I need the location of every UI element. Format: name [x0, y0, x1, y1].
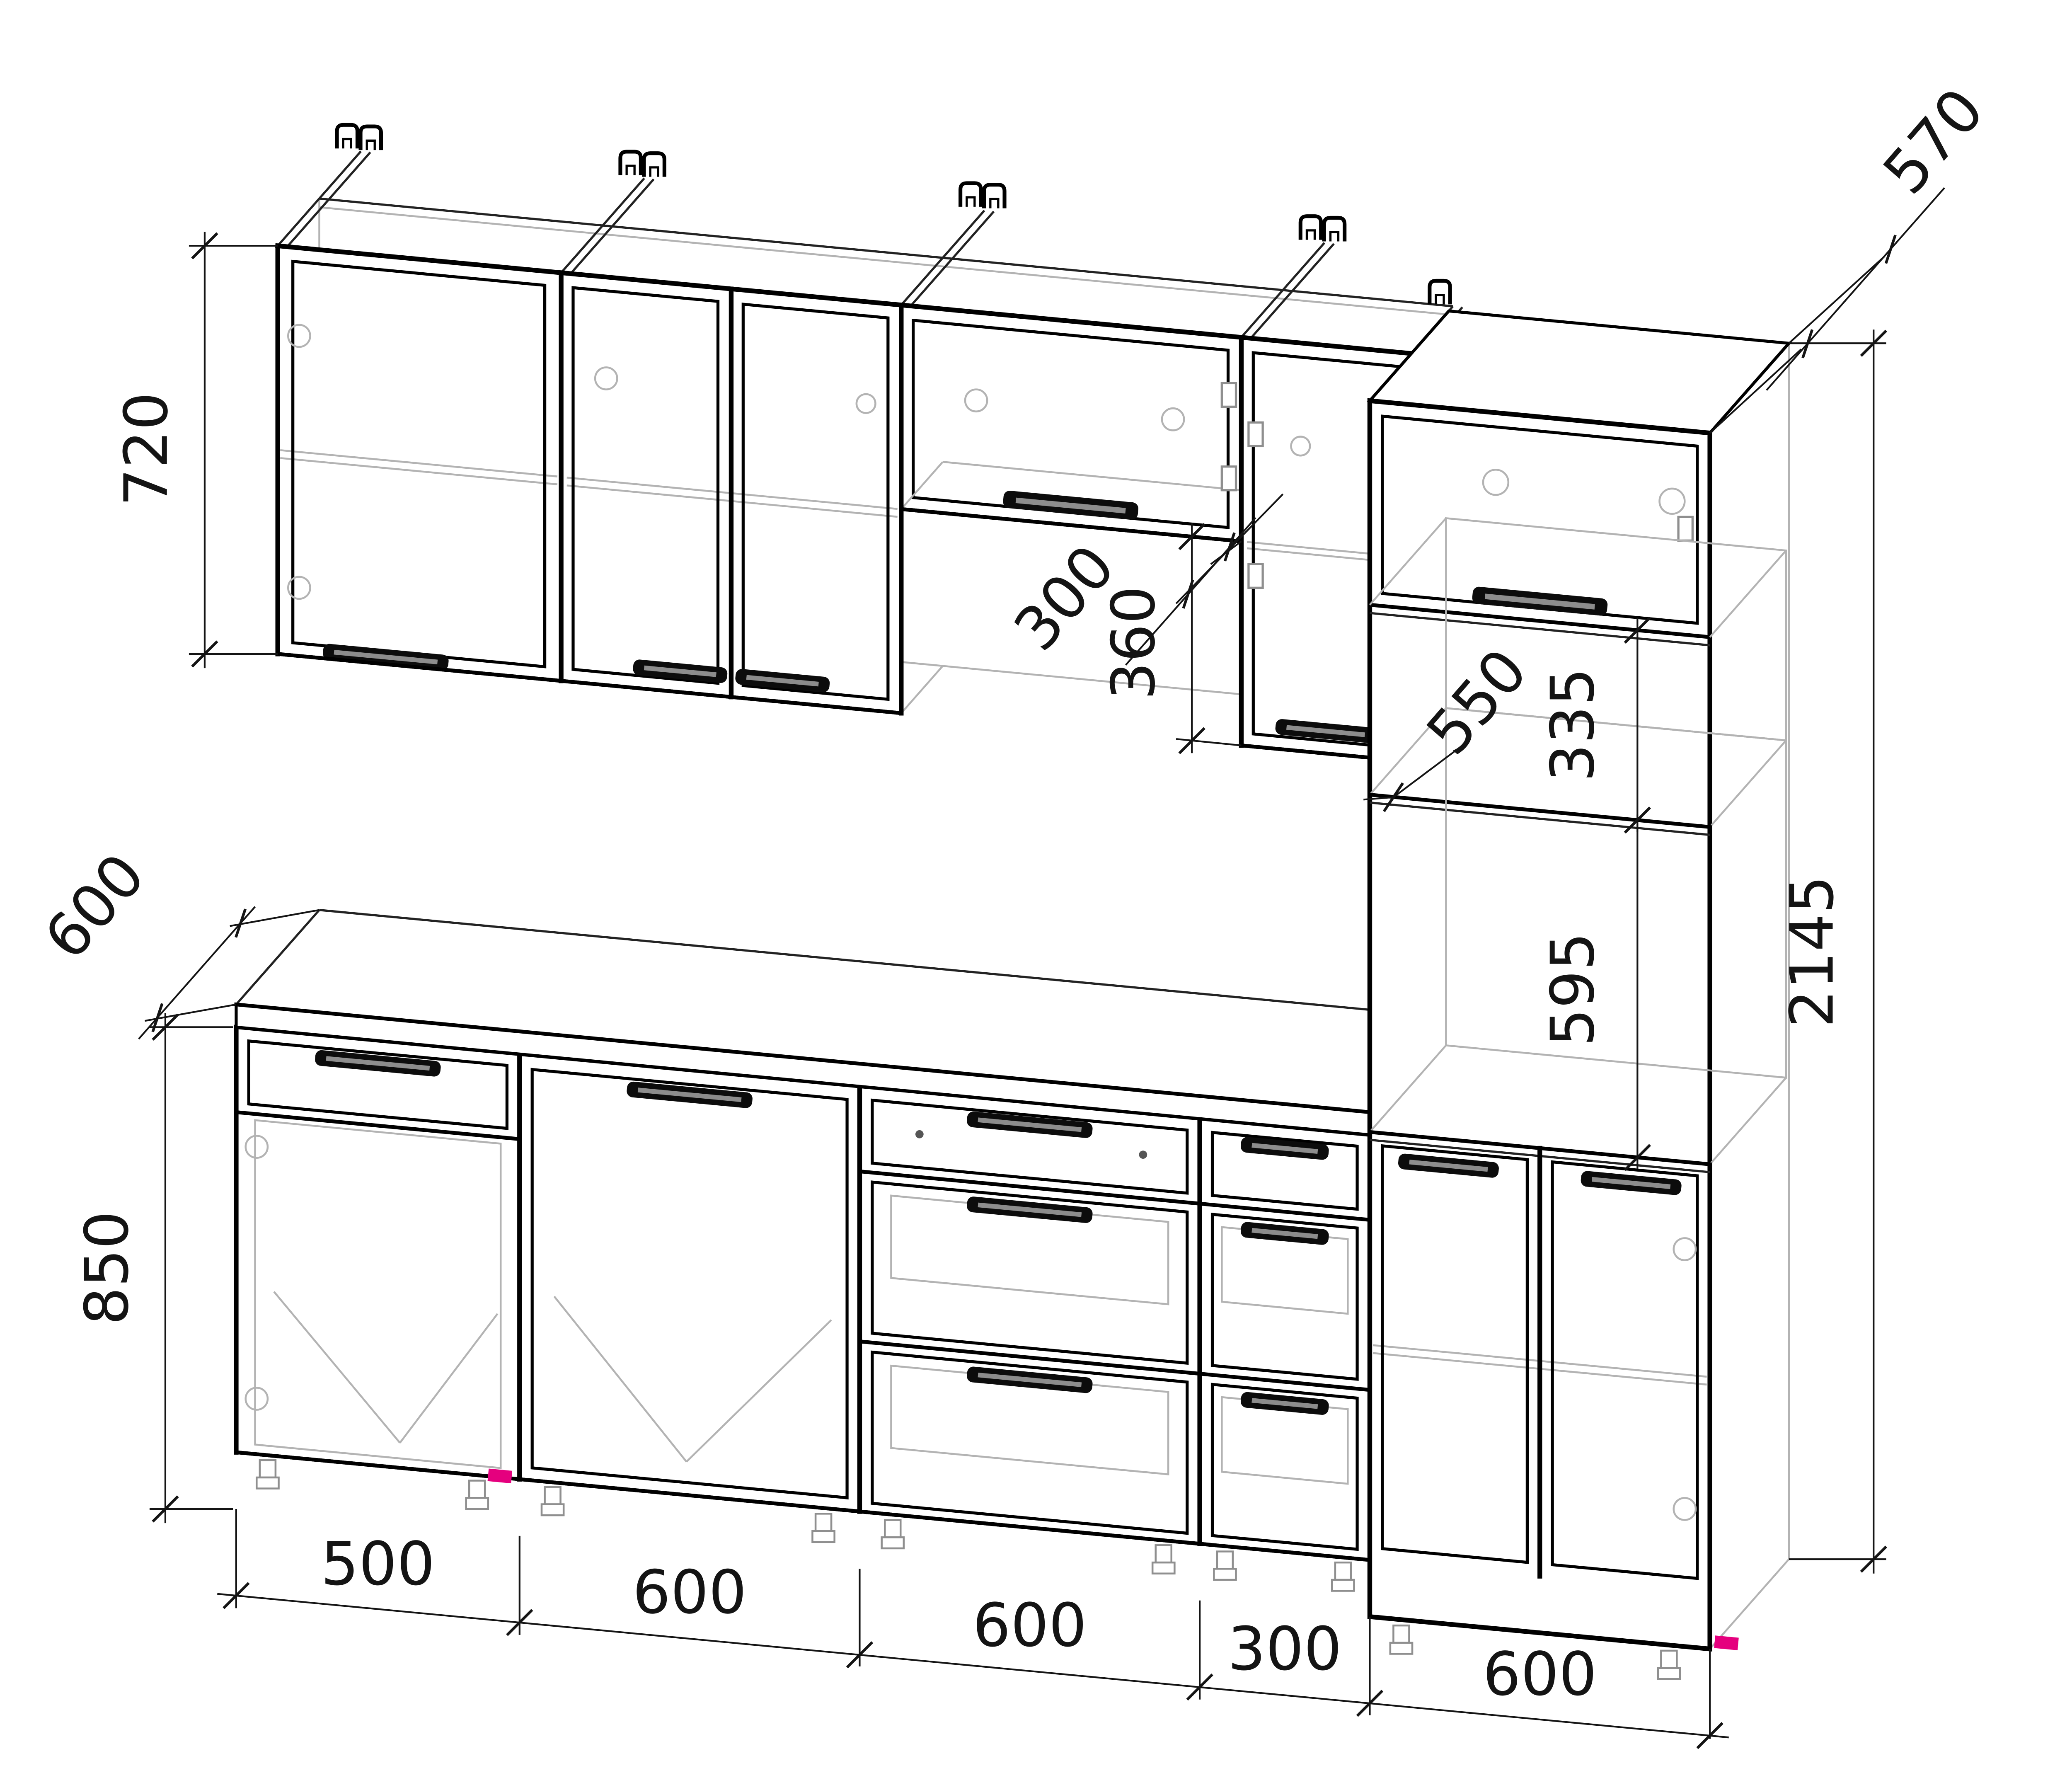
dim-label-width-2: 600: [632, 1558, 747, 1628]
dim-total-height: 2145: [1777, 329, 1886, 1574]
dim-label-600-depth: 600: [31, 841, 159, 973]
highlighted-foot-marker: [1714, 1635, 1739, 1650]
wall-cabinet-500: [278, 246, 561, 681]
base-cabinet-600-door: [520, 1054, 860, 1511]
wall-cabinet-600-double-door: [561, 273, 901, 713]
dim-label-width-3: 600: [973, 1591, 1087, 1661]
dim-label-width-1: 500: [321, 1529, 435, 1599]
dim-label-720: 720: [112, 392, 182, 506]
dim-wall-cabinet-height: 720: [112, 232, 278, 668]
dim-label-335: 335: [1538, 668, 1608, 782]
dim-label-850: 850: [73, 1211, 142, 1325]
base-cabinet-500-sink: [236, 1027, 520, 1479]
wall-cabinet-flap-600: [901, 305, 1283, 541]
dim-base-height: 850: [73, 1013, 233, 1523]
dim-label-width-4: 300: [1228, 1615, 1342, 1684]
base-cabinet-600-drawers: [859, 1086, 1200, 1544]
dim-label-360: 360: [1099, 586, 1169, 700]
dim-label-2145: 2145: [1777, 875, 1847, 1027]
highlighted-foot-marker: [487, 1469, 512, 1484]
dim-label-width-5: 600: [1483, 1640, 1597, 1709]
base-cabinet-300-drawers: [1200, 1119, 1370, 1560]
wall-cabinets: [278, 125, 1462, 761]
drawing-sheet: 720 600 850 300: [0, 0, 2072, 1785]
kitchen-elevation-drawing: 720 600 850 300: [0, 0, 2072, 1785]
dim-label-595: 595: [1538, 932, 1608, 1046]
dim-label-570: 570: [1870, 75, 1998, 207]
